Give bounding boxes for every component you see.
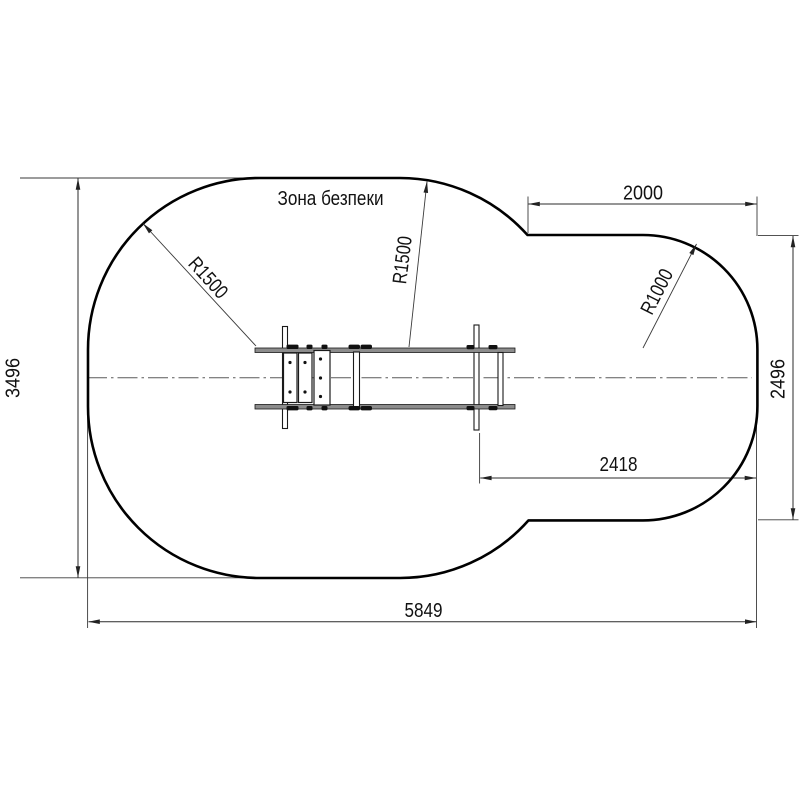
drawing-canvas: Зона безпеки 2000 2418 5849 3496 2496 R1… (0, 0, 800, 800)
radius-label-r1500-middle-group: R1500 (389, 233, 417, 287)
bolt-hole (319, 376, 322, 379)
seat-panel-1 (284, 353, 298, 403)
radius-leaders (143, 182, 697, 349)
dim-label-2496-group: 2496 (768, 359, 790, 399)
dimension-lines (78, 179, 793, 622)
radius-label-r1500-left-group: R1500 (182, 251, 233, 304)
radius-label-r1000-group: R1000 (636, 264, 679, 320)
dim-label-2000: 2000 (623, 183, 663, 205)
bolt (322, 406, 328, 410)
safety-zone-drawing: Зона безпеки 2000 2418 5849 3496 2496 R1… (0, 0, 800, 800)
bolt (287, 406, 299, 410)
dim-label-3496-group: 3496 (3, 358, 25, 398)
equipment-right-post (474, 325, 479, 430)
bolt (361, 406, 373, 410)
dim-label-2418: 2418 (600, 454, 638, 476)
bolt-hole (303, 361, 306, 364)
dim-label-3496: 3496 (3, 358, 25, 398)
bolt (307, 406, 313, 410)
bolt (349, 345, 361, 349)
bolt-hole (288, 361, 291, 364)
bolt (467, 345, 475, 349)
equipment-middle-bar (354, 352, 360, 408)
bolt (361, 345, 373, 349)
bolt (307, 345, 313, 349)
seat-panels (284, 351, 331, 406)
dim-label-2496: 2496 (768, 359, 790, 399)
safety-zone-label: Зона безпеки (278, 188, 384, 210)
bolt (287, 345, 299, 349)
seat-panel-2 (299, 353, 313, 403)
equipment-end-bar (498, 353, 503, 406)
radius-label-r1500-middle: R1500 (389, 235, 417, 285)
bolt-hole (303, 390, 306, 393)
bolt-hole (319, 357, 322, 360)
bolt-hole (319, 395, 322, 398)
equipment-top-view (255, 325, 515, 430)
dim-label-5849: 5849 (405, 600, 443, 622)
bolt-hole (288, 390, 291, 393)
bolt (489, 345, 498, 349)
bolt (322, 345, 328, 349)
bolt (489, 406, 498, 410)
bolt (467, 406, 475, 410)
bolt (349, 406, 361, 410)
